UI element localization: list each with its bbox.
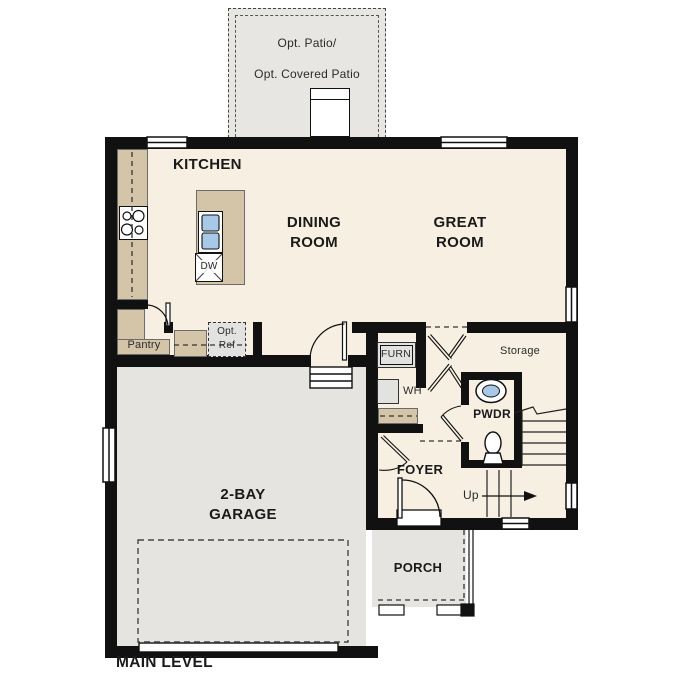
wall: [352, 322, 426, 333]
room-label-kitchen: KITCHEN: [173, 155, 242, 175]
wall: [117, 300, 148, 309]
water-heater-label: WH: [403, 384, 422, 399]
porch-edge: [469, 528, 473, 606]
wall: [366, 518, 578, 530]
page-title: MAIN LEVEL: [116, 653, 213, 673]
room-label-porch: PORCH: [394, 559, 442, 576]
kitchen-counter: [174, 330, 207, 357]
dishwasher-label: DW: [199, 260, 218, 273]
room-label-foyer: FOYER: [397, 461, 443, 478]
wall: [105, 137, 117, 658]
wall: [461, 460, 522, 468]
wall: [164, 322, 173, 333]
island-sink-unit: [198, 211, 223, 253]
wall: [461, 372, 522, 380]
wall: [416, 333, 426, 388]
patio-label: Opt. Patio/ Opt. Covered Patio: [254, 20, 360, 83]
wall: [467, 322, 578, 333]
fireplace-chimney: [310, 88, 350, 137]
wall: [253, 322, 262, 358]
floor-plan: Opt. Patio/ Opt. Covered Patio: [0, 0, 687, 687]
room-label-great: GREAT ROOM: [434, 213, 487, 253]
wall: [105, 137, 578, 149]
room-label-garage: 2-BAY GARAGE: [209, 485, 277, 525]
patio-label-line2: Opt. Covered Patio: [254, 67, 360, 81]
room-label-pantry: Pantry: [128, 338, 161, 353]
room-label-dining: DINING ROOM: [287, 213, 341, 253]
cooktop: [119, 206, 148, 240]
optional-refrigerator-label: Opt. Ref: [217, 325, 237, 353]
mud-bench: [378, 408, 418, 424]
water-heater-box: [377, 379, 399, 404]
furnace-label: FURN: [381, 348, 411, 362]
patio-label-line1: Opt. Patio/: [278, 36, 337, 50]
wall: [566, 137, 578, 530]
wall: [514, 372, 522, 468]
wall: [366, 424, 423, 433]
stairs-up-label: Up: [463, 488, 479, 504]
room-label-powder: PWDR: [473, 407, 511, 423]
room-label-storage: Storage: [500, 344, 540, 359]
